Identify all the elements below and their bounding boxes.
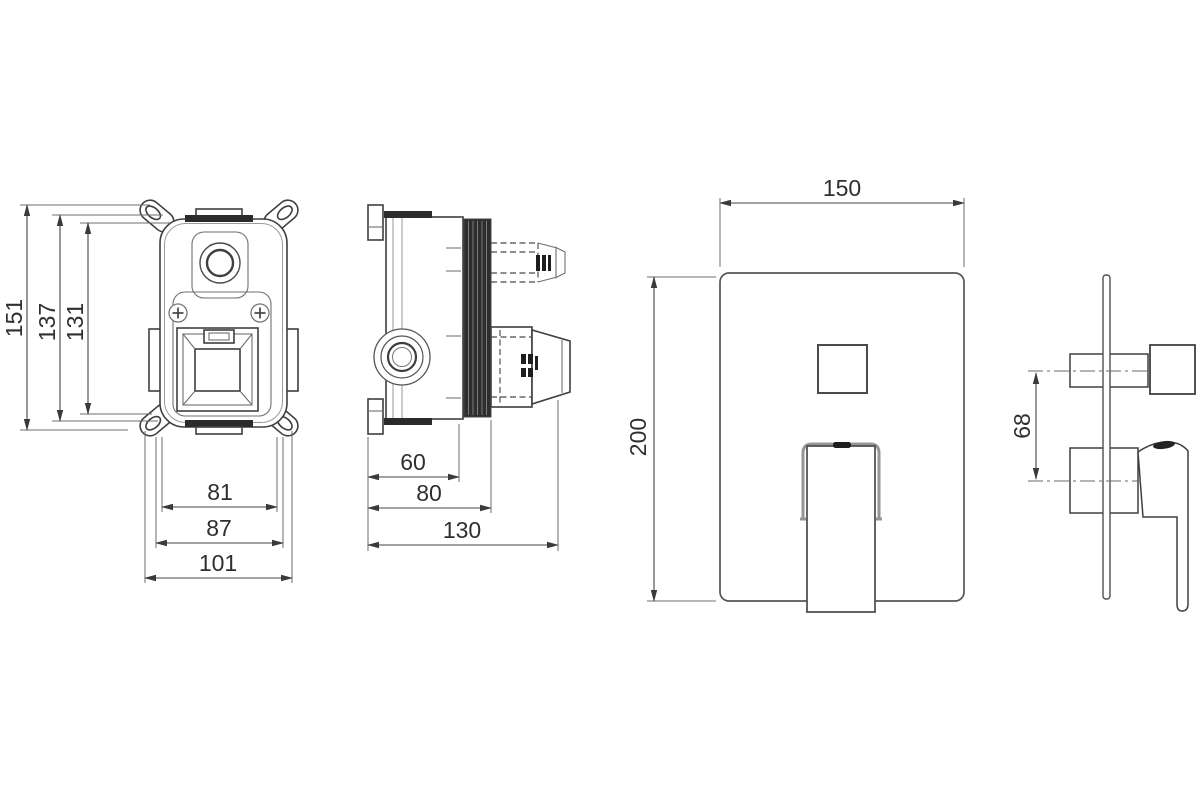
- dim-depth-80: 80: [368, 420, 491, 513]
- valve-side-view: 60 80 130: [368, 205, 570, 551]
- bottom-tab-bar: [185, 420, 253, 427]
- dim-label-131: 131: [62, 303, 88, 341]
- thread-band: [464, 219, 491, 417]
- top-port-circle: [200, 243, 240, 283]
- dim-label-81: 81: [207, 479, 233, 505]
- bottom-tab-outline: [196, 427, 242, 434]
- dim-valve-width-81: 81: [162, 437, 277, 512]
- side-bottom-tab-bar: [384, 418, 432, 425]
- flange-clip-bottom: [368, 399, 383, 434]
- valve-front-view: 151 137 131 81 87: [1, 196, 302, 583]
- lever-handle-side: [1138, 442, 1188, 611]
- lever-handle-front: [807, 446, 875, 612]
- plate-edge-side: [1103, 275, 1110, 599]
- dim-label-87: 87: [206, 515, 232, 541]
- dim-plate-width-150: 150: [720, 175, 964, 267]
- lever-cap-mark: [833, 442, 851, 448]
- plate-front-view: 150 200: [625, 175, 964, 612]
- dim-valve-height-137: 137: [34, 215, 163, 421]
- trim-side-view: 68: [1009, 275, 1195, 611]
- outlet-opening: [177, 328, 258, 411]
- top-tab-outline: [196, 209, 242, 216]
- side-port-circle: [374, 329, 430, 385]
- dim-label-60: 60: [400, 449, 426, 475]
- dim-label-151: 151: [1, 299, 27, 337]
- screw-left: [169, 304, 187, 322]
- dim-label-101: 101: [199, 550, 237, 576]
- screw-right: [251, 304, 269, 322]
- top-tab-bar: [185, 215, 253, 222]
- valve-side-body: [386, 217, 463, 419]
- dim-label-200: 200: [625, 418, 651, 456]
- side-top-tab-bar: [384, 211, 432, 218]
- dim-plate-height-200: 200: [625, 277, 716, 601]
- dim-center-spacing-68: 68: [1009, 373, 1036, 479]
- dim-label-80: 80: [416, 480, 442, 506]
- dim-label-68: 68: [1009, 413, 1035, 439]
- dim-label-137: 137: [34, 303, 60, 341]
- diverter-knob-side: [1150, 345, 1195, 394]
- diverter-button: [818, 345, 867, 393]
- dim-label-150: 150: [823, 175, 861, 201]
- lower-connection: [491, 327, 570, 407]
- flange-clip-top: [368, 205, 383, 240]
- upper-connection: [491, 243, 565, 282]
- technical-drawing: 151 137 131 81 87: [0, 0, 1200, 800]
- dim-label-130: 130: [443, 517, 481, 543]
